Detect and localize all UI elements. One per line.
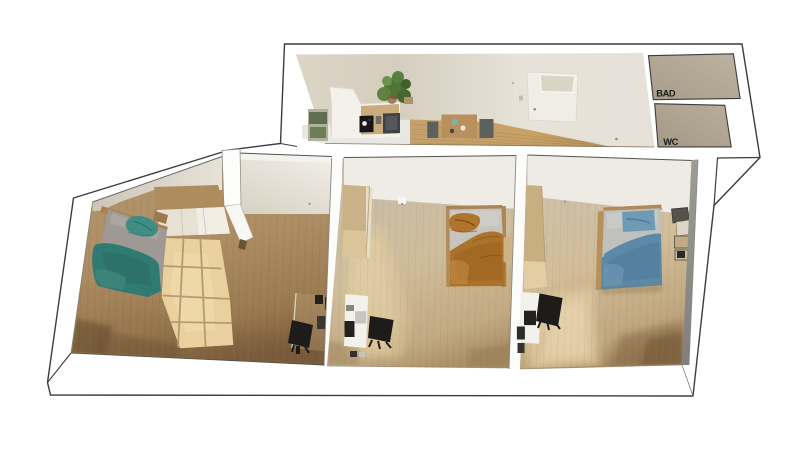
svg-text:BAD: BAD [656, 89, 676, 99]
svg-text:WC: WC [663, 137, 678, 147]
